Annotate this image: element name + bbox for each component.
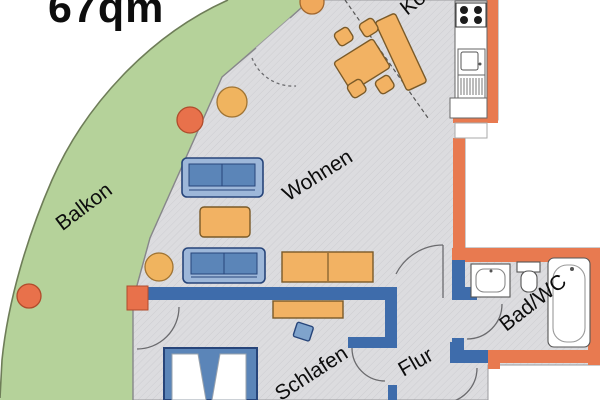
kitchen-counter-end xyxy=(450,98,487,118)
plant-yellow xyxy=(145,253,173,281)
window-notch xyxy=(455,123,487,138)
floor-plan-page: 67qm Balkon Wohnen Kochen Schlafen Flur … xyxy=(0,0,600,400)
kitchen-sink-bowl xyxy=(461,52,478,70)
kitchen-fixtures xyxy=(450,1,487,118)
bath-sink-icon xyxy=(471,264,510,297)
plant-yellow xyxy=(217,87,247,117)
plant-red-balcony xyxy=(17,284,41,308)
wall-bath-bottom-step xyxy=(488,363,500,369)
double-bed xyxy=(164,348,257,400)
kitchen-drainer xyxy=(458,75,485,98)
bedroom-desk xyxy=(273,301,343,318)
wall-hall-entry-l2 xyxy=(450,350,488,363)
kitchen-sink-drain xyxy=(479,63,482,66)
floor-plan: 67qm Balkon Wohnen Kochen Schlafen Flur … xyxy=(0,0,600,400)
wall-hall-bottom-stub xyxy=(388,385,397,400)
wall-living-bedroom xyxy=(148,287,397,300)
wall-end-block xyxy=(127,286,148,310)
area-label: 67qm xyxy=(48,0,164,32)
wall-bath-bottom xyxy=(488,350,600,363)
sideboard xyxy=(282,252,373,282)
wall-mid-right xyxy=(453,138,465,250)
plant-red xyxy=(177,107,203,133)
sofa-top xyxy=(182,158,263,197)
coffee-table xyxy=(200,207,250,237)
wall-bedroom-hall-vertical xyxy=(385,300,397,340)
wall-kitchen-right xyxy=(487,0,498,122)
sofa-bottom xyxy=(183,248,265,283)
stove-icon xyxy=(456,3,486,27)
wall-bedroom-closet xyxy=(348,337,397,348)
